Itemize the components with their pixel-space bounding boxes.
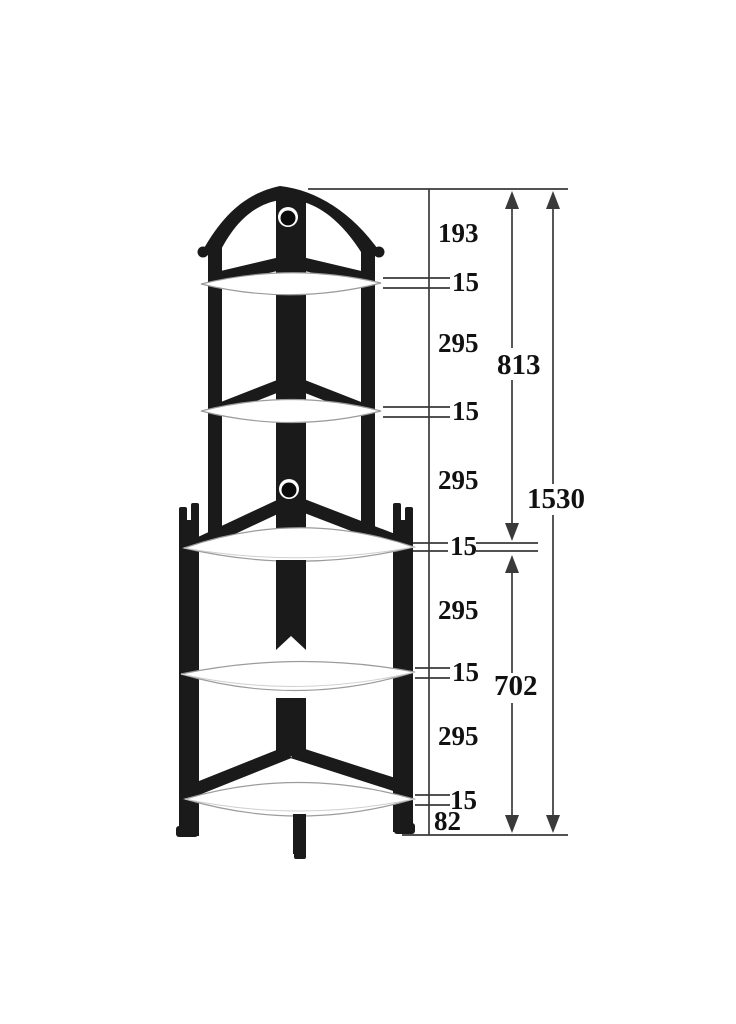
arch-right-curl [374, 247, 385, 258]
dim-label-813: 813 [497, 349, 541, 381]
lower-right-post-inner-prong [393, 503, 401, 524]
upper-left-rail [208, 246, 222, 542]
corner-post-mid [276, 560, 306, 650]
shelf-unit [176, 186, 415, 859]
leader-15-shelf2 [383, 407, 450, 417]
dim-label-193: 193 [438, 218, 479, 248]
center-leg [293, 814, 306, 854]
dim-label-15-2: 15 [452, 396, 479, 426]
lower-left-post-outer-prong [179, 507, 187, 524]
dim-label-15-3: 15 [450, 531, 477, 561]
corner-shelf-technical-drawing: 193 15 295 15 295 15 295 15 295 15 82 81… [0, 0, 736, 1024]
corner-post-lower [276, 698, 306, 756]
dim-label-295-3: 295 [438, 595, 479, 625]
leader-15-shelf1 [383, 278, 450, 288]
right-foot [394, 823, 415, 834]
top-hole-icon [281, 211, 296, 226]
dim-label-702: 702 [494, 670, 538, 702]
drawing-canvas: 193 15 295 15 295 15 295 15 295 15 82 81… [0, 0, 736, 1024]
leader-15-shelf5 [415, 795, 450, 805]
shelf5-apron-right [293, 752, 399, 786]
dim-label-295-2: 295 [438, 465, 479, 495]
lower-left-post-inner-prong [191, 503, 199, 524]
upper-right-rail [361, 246, 375, 542]
lower-right-post-outer-prong [405, 507, 413, 524]
dim-label-1530: 1530 [527, 483, 585, 515]
dim-label-15-4: 15 [452, 657, 479, 687]
arch-left-curl [198, 247, 209, 258]
leader-15-shelf4 [415, 668, 450, 678]
dim-label-295-4: 295 [438, 721, 479, 751]
dim-label-295-1: 295 [438, 328, 479, 358]
dim-label-15-1: 15 [452, 267, 479, 297]
center-foot [294, 852, 306, 859]
dim-label-82: 82 [434, 806, 461, 836]
mid-hole-icon [282, 483, 297, 498]
left-foot [176, 826, 198, 837]
